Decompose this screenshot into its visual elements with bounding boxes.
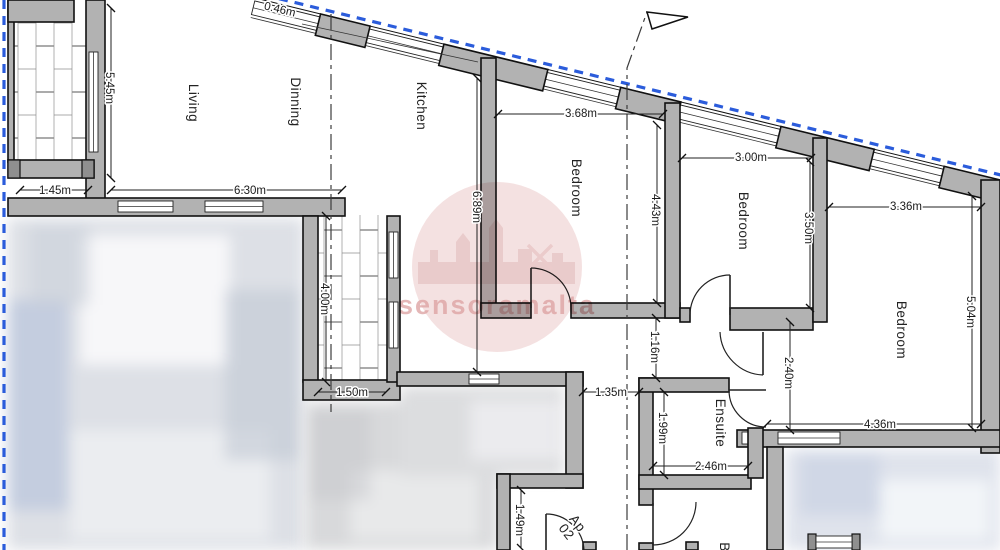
dim-label-balcony2-depth: 4.00m [318,283,330,315]
ensuite-east-wall [748,428,763,478]
entry-west-wall [497,474,510,550]
room-label-bedroom1: Bedroom [569,159,584,217]
room-label-bedroom2: Bedroom [736,192,751,250]
dim-label-hall-depth: 2.40m [782,357,794,389]
ensuite-door [729,390,766,427]
dim-label-bedroom1-depth: 4.43m [649,194,661,226]
ensuite-south-wall [639,475,751,489]
balcony2-west-wall [303,216,318,382]
facade-sill-line [302,24,478,62]
dim-label-bedroom3-depth: 5.04m [964,296,976,328]
threshold-jamb-left [808,534,816,550]
blurred-adjacent-apartment-left [8,218,304,550]
bottom-right-room-west-wall [767,447,783,550]
dim-label-bedroom2-depth: 3.50m [802,212,814,244]
bedroom3-south-wall [737,430,1000,447]
dim-label-kitchen-depth: 6.89m [470,191,482,223]
room-label-ensuite: Ensuite [713,399,728,448]
dim-label-bedroom3-south: 4.36m [864,419,896,431]
blurred-room-bottom-right [785,449,1000,550]
balcony1-south-wall [8,160,94,178]
room-label-dinning: Dinning [288,77,303,126]
room-label-living: Living [186,84,201,122]
room-label-bathroom-partial: B [717,542,732,550]
dim-label-bedroom1-width: 3.68m [565,108,597,120]
watermark: sensoramalta [398,182,596,352]
dim-label-balcony1-height: 5.45m [103,72,115,104]
dim-label-living-width: 6.30m [234,185,266,197]
bedroom1-east-wall [665,103,680,318]
threshold-jamb-right [852,534,860,550]
top-left-pier [8,0,74,22]
bathroom-stub [686,542,698,550]
dim-label-balcony1-width: 1.45m [39,185,71,197]
floor-plan-drawing: sensoramalta Living Dinning Kitchen Bedr… [0,0,1000,550]
bedroom2-door [690,275,730,315]
dim-label-entrance-recess: 1.49m [513,504,525,536]
dim-label-ensuite-depth: 1.99m [656,412,668,444]
hall-west-wall [566,372,583,488]
dim-label-bedroom2-width: 3.00m [735,152,767,164]
slanted-facade-wall [242,0,1000,206]
dim-label-corridor-width: 1.16m [648,331,660,363]
room-label-bedroom3: Bedroom [894,301,909,359]
dim-label-balcony2-width: 1.50m [336,387,368,399]
living-south-wall [8,198,345,216]
dim-label-bedroom3-width: 3.36m [890,201,922,213]
bedroom3-door [720,332,763,375]
bedroom2-south-wall [730,308,813,330]
bathroom-door [653,502,696,545]
ensuite-west-stub [639,543,653,550]
room-label-kitchen: Kitchen [414,82,429,131]
bedroom2-bedroom3-wall [813,138,827,322]
balcony1-tiles [13,1,87,161]
flag-marker-icon [647,12,688,29]
floor-plan-page: sensoramalta Living Dinning Kitchen Bedr… [0,0,1000,550]
bedroom2-south-stub [680,308,690,322]
dim-label-hall-passage: 1.35m [595,387,627,399]
ensuite-north-wall [639,378,729,392]
balcony1-west-wall [8,0,14,162]
dim-label-ensuite-width: 2.46m [695,461,727,473]
watermark-text: sensoramalta [398,290,596,320]
entry-jamb [583,542,596,550]
bedroom3-east-wall [981,180,1000,453]
